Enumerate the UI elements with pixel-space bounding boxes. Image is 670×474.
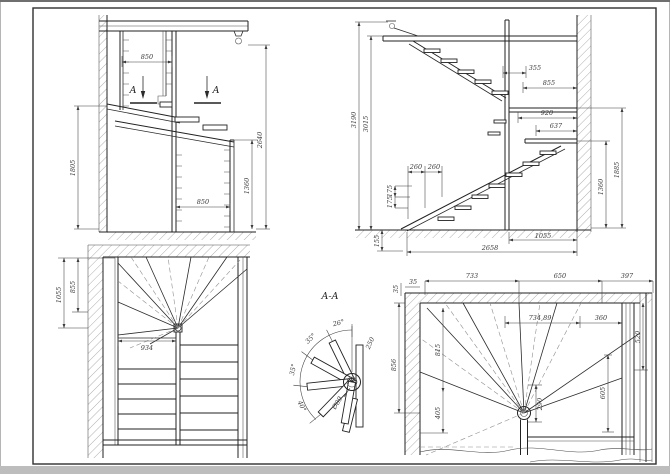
- blueprint-page: A A 850 2640 1360 1805: [0, 0, 670, 474]
- dim-width-top: 855: [543, 79, 555, 87]
- dim-total-height: 2640: [256, 132, 264, 150]
- dim-top-width: 850: [141, 53, 153, 61]
- dim-right-inner: 605: [599, 387, 607, 399]
- dim-run-total: 2658: [481, 244, 499, 252]
- dim-right-lower: 1360: [597, 179, 605, 196]
- dim-depth-inner: 855: [69, 281, 77, 293]
- dim-depth-outer: 1055: [55, 287, 63, 304]
- dim-landing-1: 920: [541, 109, 553, 117]
- dim-top-1: 733: [466, 272, 478, 280]
- dim-right-outer: 520: [634, 331, 642, 343]
- dim-top-3: 397: [621, 272, 634, 280]
- dim-left-height: 1805: [69, 160, 77, 177]
- dim-wall-thk-h: 35: [409, 278, 417, 286]
- dim-left-outer: 856: [390, 359, 398, 371]
- dim-wall-thk-v: 35: [392, 285, 400, 293]
- dim-landing-2: 637: [550, 122, 563, 130]
- section-letter: A: [212, 85, 220, 96]
- detail-title: A-A: [321, 291, 339, 302]
- dim-riser-2: 175: [386, 196, 394, 208]
- dim-right-height: 1360: [243, 178, 251, 195]
- dim-left-lower: 405: [434, 407, 442, 420]
- dim-tread: 290: [536, 398, 544, 411]
- dim-tread-2: 260: [427, 163, 440, 171]
- dim-bottom-width: 850: [197, 198, 209, 206]
- dim-tread-1: 260: [409, 163, 422, 171]
- dim-span-1: 734,89: [529, 314, 552, 322]
- dim-run-right: 1055: [535, 232, 552, 240]
- dim-right-upper: 1885: [613, 162, 621, 179]
- section-letter: A: [129, 85, 137, 96]
- dim-span-2: 360: [595, 314, 607, 322]
- dim-width: 934: [141, 344, 153, 352]
- dim-offset-top: 355: [529, 64, 541, 72]
- dim-top-2: 650: [554, 272, 566, 280]
- dim-base: 155: [373, 235, 381, 247]
- dim-h-inner: 3015: [362, 116, 370, 133]
- dim-riser-1: 175: [386, 185, 394, 197]
- staircase-drawing: A A 850 2640 1360 1805: [0, 0, 670, 474]
- dim-left-inner: 815: [434, 344, 442, 356]
- dim-h-total: 3190: [350, 112, 358, 129]
